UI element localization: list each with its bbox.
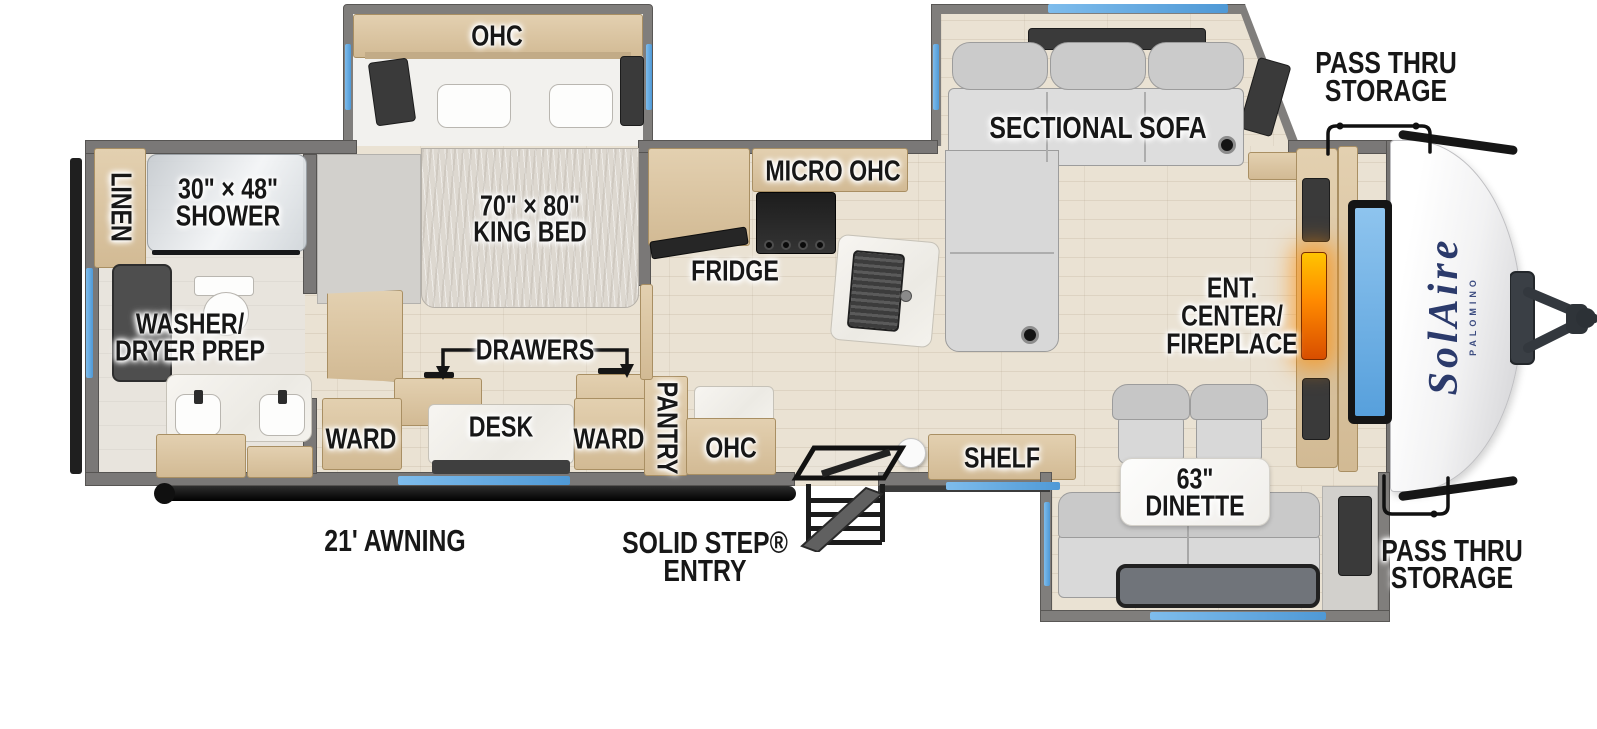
shelf-window	[946, 482, 1060, 490]
sofa-back-cushion-3	[1148, 42, 1244, 90]
bedroom-corner-shelf	[327, 290, 403, 382]
dinette-window-bottom	[1150, 612, 1326, 620]
floorplan: SolAire PALOMINO OHC LINEN 30" × 48" SHO…	[0, 0, 1597, 729]
bedroom-slide-window-right	[646, 44, 652, 110]
ent-upper-cabinet	[1302, 178, 1330, 242]
entry-ohc-label: OHC	[705, 433, 757, 466]
pass-thru-bracket-bottom-icon	[1378, 474, 1456, 524]
bedroom-ohc-label: OHC	[471, 21, 523, 54]
shelf-label: SHELF	[964, 443, 1040, 476]
desk-kneehole	[432, 460, 570, 474]
pass-thru-bottom-label-line2: STORAGE	[1391, 560, 1513, 596]
front-window-glass	[1355, 208, 1385, 416]
sofa-chaise	[945, 150, 1059, 352]
burner-3-icon	[798, 240, 808, 250]
chair-2-back	[1190, 384, 1268, 420]
dinette-label-line2: DINETTE	[1145, 491, 1244, 524]
fridge-label: FRIDGE	[691, 256, 779, 289]
dinette-window-left	[1044, 502, 1050, 586]
ward-left-label: WARD	[326, 424, 397, 457]
burner-2-icon	[781, 240, 791, 250]
island-faucet-icon	[900, 290, 912, 302]
island-sink	[847, 250, 906, 332]
bedroom-closet-wall	[317, 154, 421, 304]
bedroom-window-right-icon	[620, 56, 644, 126]
ent-lower-cabinet	[1302, 378, 1330, 440]
vanity-cabinet-right	[247, 446, 313, 478]
desk-label: DESK	[469, 412, 533, 445]
drawers-label: DRAWERS	[476, 335, 595, 368]
faucet-left-icon	[194, 390, 203, 404]
washer-dryer-label-line2: DRYER PREP	[115, 336, 265, 369]
fireplace-icon	[1301, 252, 1327, 360]
chair-2-seat	[1196, 414, 1262, 464]
shower-label-line2: SHOWER	[176, 201, 280, 234]
awning-end-cap	[154, 483, 175, 504]
linen-label: LINEN	[104, 172, 137, 242]
bedroom-slide-window-left	[345, 44, 351, 110]
pantry-label: PANTRY	[650, 382, 683, 475]
bathroom-window-left	[86, 268, 93, 378]
sofa-chaise-divider	[950, 252, 1054, 254]
entry-steps-icon	[796, 482, 896, 552]
sofa-back-cushion-2	[1050, 42, 1146, 90]
hitch-icon	[1510, 262, 1597, 374]
pillow-right	[549, 84, 613, 128]
brand-logo: SolAire PALOMINO	[1423, 186, 1493, 446]
awning-bar	[164, 486, 796, 501]
micro-ohc-label: MICRO OHC	[765, 156, 900, 189]
brand-name: SolAire	[1423, 186, 1465, 446]
bedroom-window-bottom	[398, 476, 570, 485]
sofa-cupholder-chaise-icon	[1021, 326, 1039, 344]
brand-subtitle: PALOMINO	[1468, 186, 1478, 446]
rear-bumper	[70, 158, 82, 474]
pass-thru-bracket-top-icon	[1322, 118, 1438, 158]
vanity-cabinet-left	[156, 434, 246, 478]
entry-platform-icon	[788, 442, 908, 484]
sectional-sofa-label: SECTIONAL SOFA	[989, 110, 1206, 146]
pass-thru-top-label-line2: STORAGE	[1325, 73, 1447, 109]
faucet-right-icon	[278, 390, 287, 404]
pillow-left	[437, 84, 511, 128]
sofa-slide-window-left	[933, 44, 939, 110]
awning-label: 21' AWNING	[324, 523, 465, 559]
king-bed-label-line2: KING BED	[473, 217, 586, 250]
sofa-cupholder-top-icon	[1218, 136, 1236, 154]
ent-center-label-line3: FIREPLACE	[1166, 329, 1297, 362]
shower-door-track	[152, 250, 300, 255]
chair-1-back	[1112, 384, 1190, 420]
burner-1-icon	[764, 240, 774, 250]
solid-step-label-line2: ENTRY	[663, 553, 746, 589]
burner-4-icon	[815, 240, 825, 250]
sofa-back-cushion-1	[952, 42, 1048, 90]
sofa-slide-window-top	[1048, 4, 1228, 13]
ward-right-label: WARD	[574, 424, 645, 457]
chair-1-seat	[1118, 414, 1184, 464]
dinette-window-right-icon	[1338, 496, 1372, 576]
dinette-table	[1116, 564, 1320, 608]
